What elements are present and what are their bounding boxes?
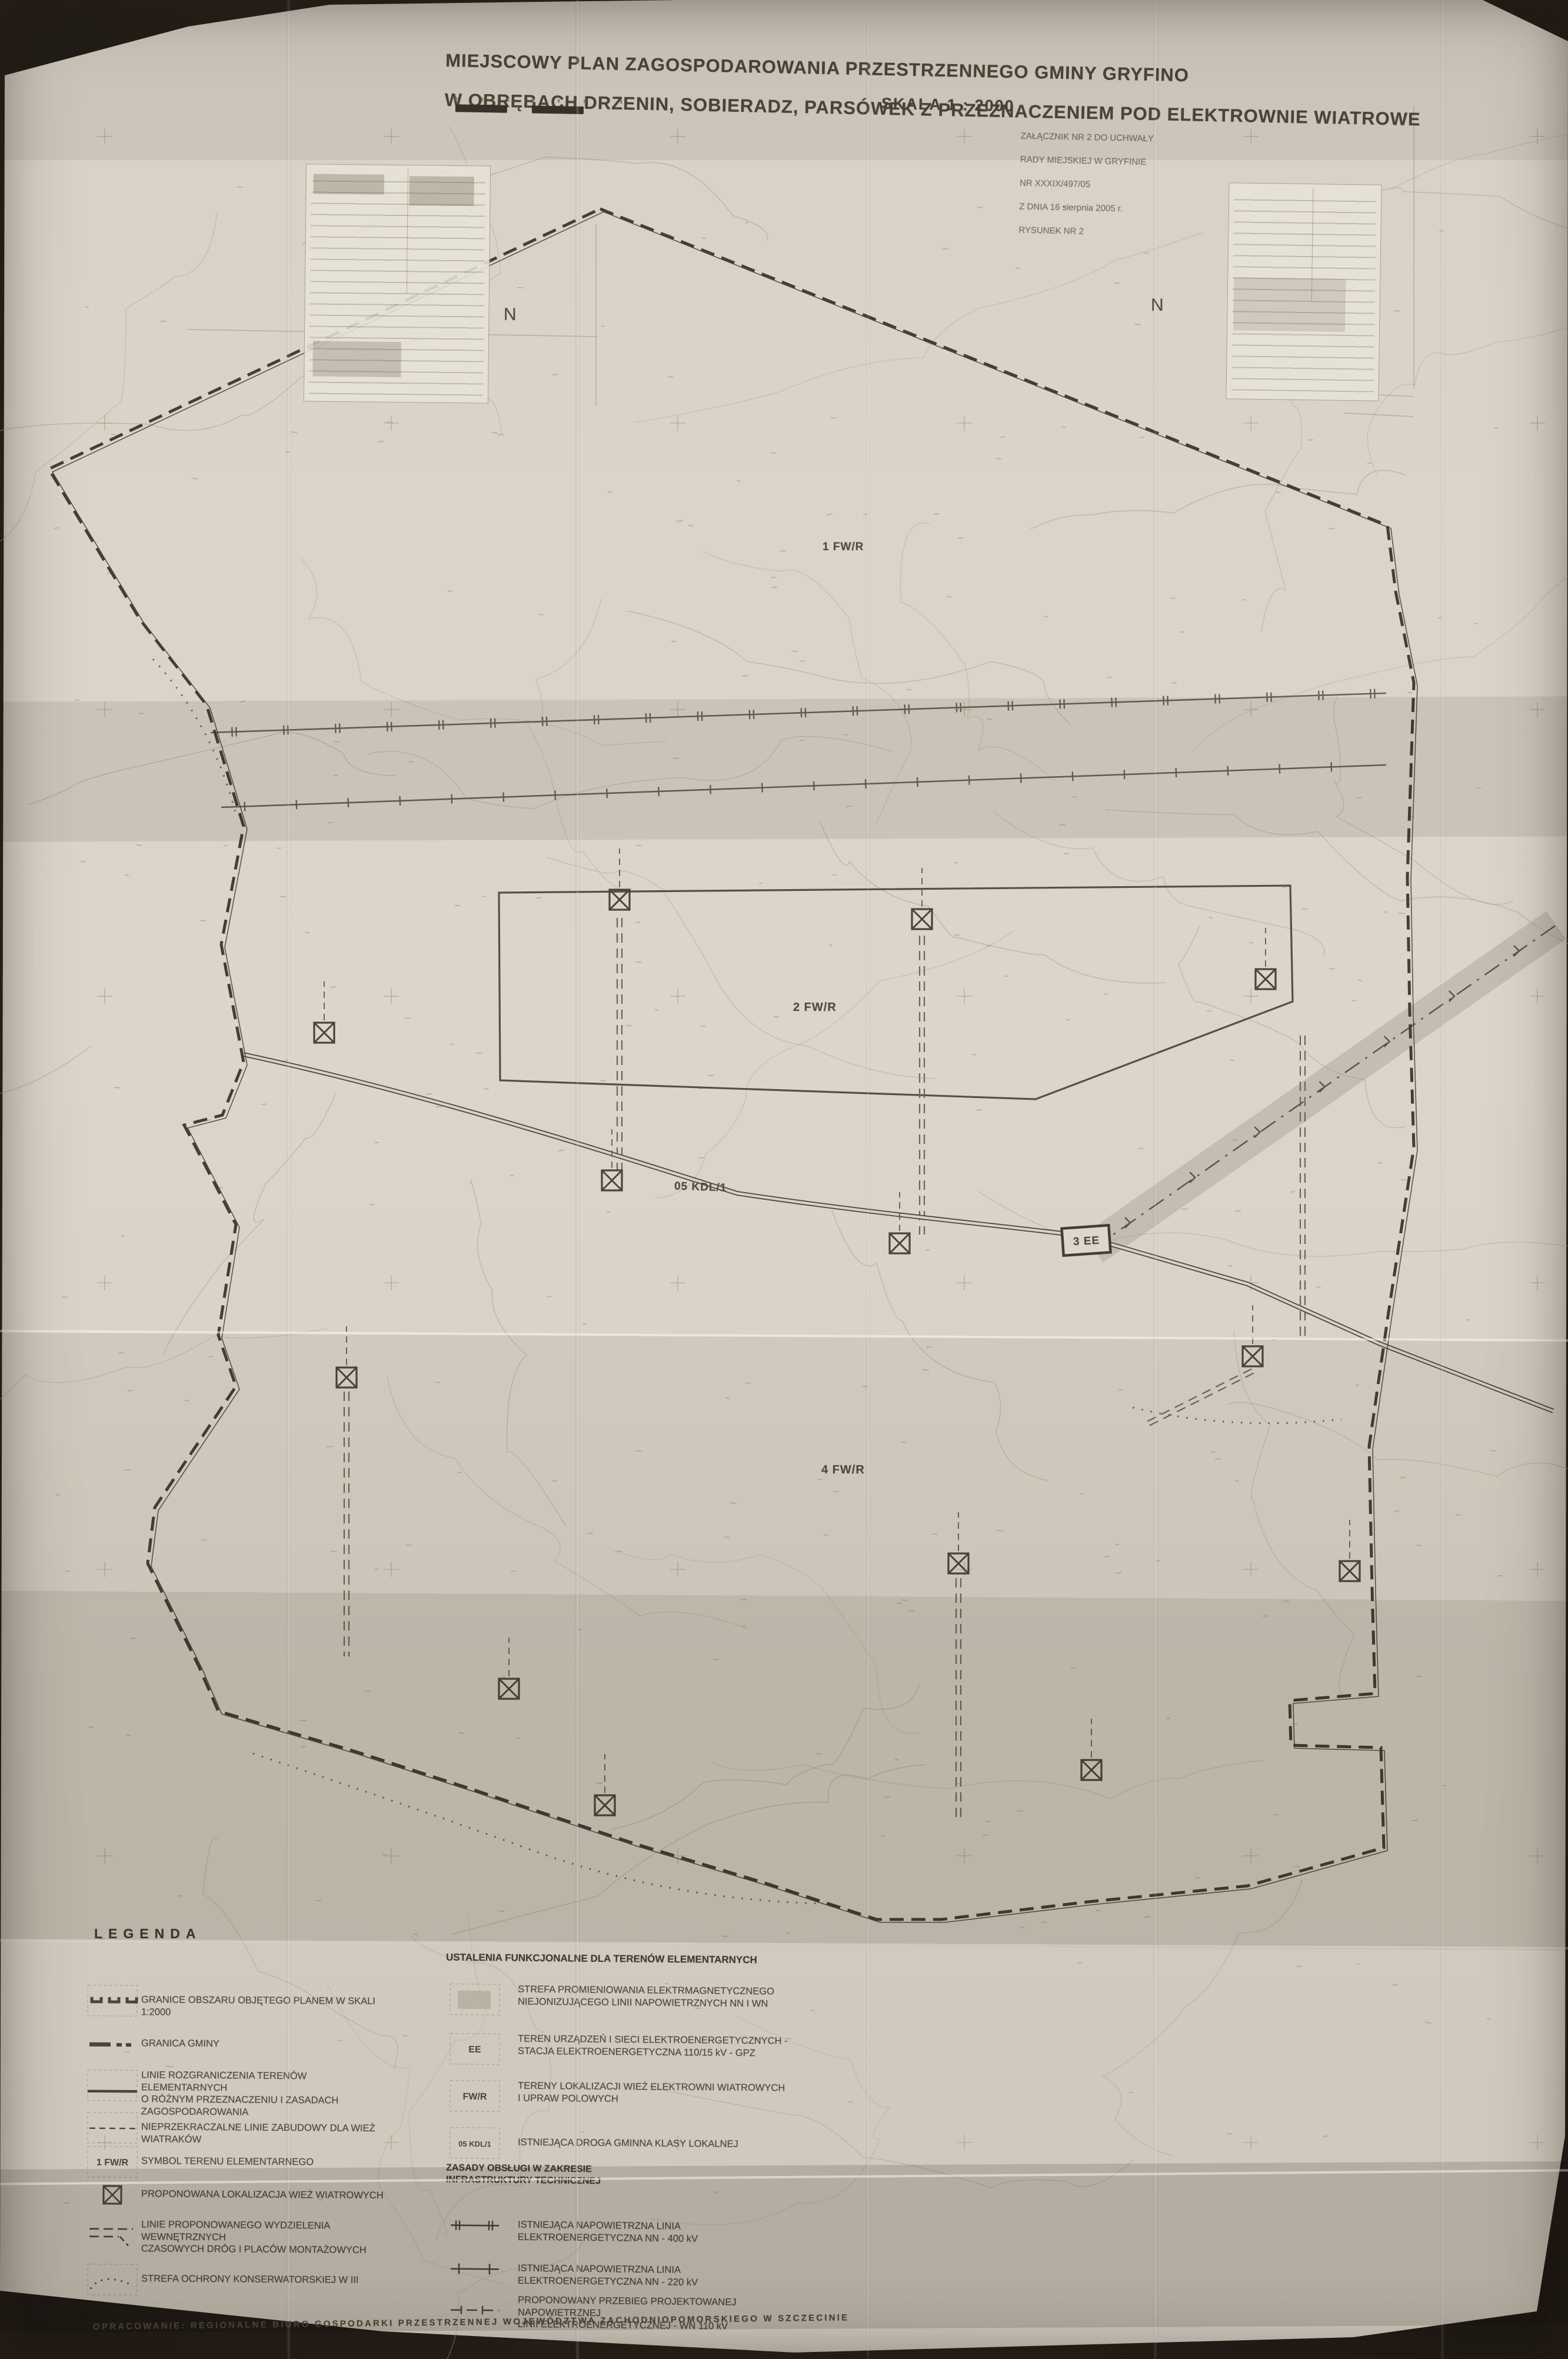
legend-item: LINIE ROZGRANICZENIA TERENÓW ELEMENTARNY… bbox=[86, 2068, 139, 2107]
legend-item: 05 KDL/1ISTNIEJĄCA DROGA GMINNA KLASY LO… bbox=[448, 2125, 502, 2164]
legend-item: PROPONOWANA LOKALIZACJA WIEŻ WIATROWYCH bbox=[86, 2177, 139, 2216]
scale-bar-segment bbox=[455, 104, 507, 113]
contour-line bbox=[1103, 1880, 1302, 2156]
grid-cross bbox=[1530, 2135, 1545, 2150]
contour-line bbox=[1031, 471, 1407, 529]
grid-cross bbox=[97, 1848, 112, 1864]
contour-line bbox=[471, 1181, 566, 1526]
area-label-1fwr: 1 FW/R bbox=[823, 540, 864, 554]
windmill-tower-symbol bbox=[610, 849, 630, 910]
legend-item-label: PROPONOWANA LOKALIZACJA WIEŻ WIATROWYCH bbox=[141, 2188, 394, 2202]
stamp-text-block bbox=[1233, 277, 1346, 332]
station-label-3ee: 3 EE bbox=[1073, 1234, 1100, 1249]
contour-line bbox=[654, 931, 1014, 1198]
grid-cross bbox=[1530, 702, 1545, 717]
grid-cross bbox=[670, 702, 685, 717]
svg-text:05 KDL/1: 05 KDL/1 bbox=[458, 2140, 491, 2148]
area-label-2fwr: 2 FW/R bbox=[793, 1000, 837, 1015]
legend-item-label: STREFA PROMIENIOWANIA ELEKTRMAGNETYCZNEG… bbox=[518, 1984, 794, 2010]
area-2fwr-boundary bbox=[499, 886, 1293, 1099]
zabudowy-symbol bbox=[86, 2110, 139, 2146]
contour-line bbox=[367, 737, 893, 808]
contour-line bbox=[1234, 1330, 1354, 1700]
plan-boundary-symbol bbox=[86, 1983, 139, 2019]
annotation-line: NR XXXIX/497/05 bbox=[1020, 178, 1153, 192]
grid-cross bbox=[384, 129, 399, 144]
grid-cross bbox=[957, 989, 972, 1004]
windmill-tower-symbol bbox=[314, 981, 334, 1043]
sheet-stamp-right bbox=[1226, 182, 1381, 401]
legend-item: STREFA PROMIENIOWANIA ELEKTRMAGNETYCZNEG… bbox=[448, 1982, 502, 2021]
temp-road-line bbox=[1146, 1369, 1251, 1422]
annotation-line: ZAŁĄCZNIK NR 2 DO UCHWAŁY bbox=[1020, 131, 1154, 145]
grid-cross bbox=[957, 415, 972, 431]
contour-line bbox=[1334, 696, 1513, 904]
grid-cross bbox=[957, 702, 972, 717]
contour-line bbox=[820, 821, 1167, 983]
grid-cross bbox=[384, 1562, 399, 1577]
resolution-annotation: ZAŁĄCZNIK NR 2 DO UCHWAŁY RADY MIEJSKIEJ… bbox=[1018, 119, 1154, 251]
scale-bar-segment bbox=[532, 106, 584, 115]
grid-cross bbox=[670, 989, 685, 1004]
legend-item: LINIE PROPONOWANEGO WYDZIELENIA WEWNĘTRZ… bbox=[86, 2217, 139, 2256]
grid-cross bbox=[97, 989, 112, 1004]
grid-cross bbox=[957, 1848, 972, 1864]
grid-cross bbox=[670, 415, 685, 431]
contour-line bbox=[410, 1917, 487, 2235]
drogi-symbol bbox=[86, 2217, 139, 2253]
contour-line bbox=[703, 551, 912, 823]
legend-item: STREFA OCHRONY KONSERWATORSKIEJ W III bbox=[86, 2262, 139, 2301]
graphic-scale-bar bbox=[448, 97, 648, 118]
conservation-zone-line bbox=[253, 1754, 824, 1904]
legend-item-label: SYMBOL TERENU ELEMENTARNEGO bbox=[141, 2155, 394, 2169]
gmina-boundary-symbol bbox=[86, 2027, 139, 2062]
grid-cross bbox=[97, 415, 112, 431]
contour-line bbox=[1193, 558, 1568, 751]
plan-boundary bbox=[49, 209, 1414, 1919]
em-strip-symbol bbox=[448, 1982, 502, 2018]
legend-item: EETEREN URZĄDZEŃ I SIECI ELEKTROENERGETY… bbox=[448, 2031, 502, 2070]
legend-item-label: TEREN URZĄDZEŃ I SIECI ELEKTROENERGETYCZ… bbox=[518, 2033, 794, 2059]
svg-text:FW/R: FW/R bbox=[462, 2092, 487, 2102]
contour-line bbox=[0, 1329, 327, 1489]
contour-line bbox=[203, 1838, 398, 2069]
grid-cross bbox=[670, 129, 685, 144]
stamp-text-block bbox=[409, 176, 474, 206]
legend-item-label: NIEPRZEKRACZALNE LINIE ZABUDOWY DLA WIEŻ… bbox=[141, 2121, 394, 2147]
annotation-line: RADY MIEJSKIEJ W GRYFINIE bbox=[1020, 154, 1154, 169]
grid-cross bbox=[1243, 1562, 1259, 1577]
grid-cross bbox=[384, 1275, 399, 1290]
windmill-tower-symbol bbox=[1243, 1305, 1263, 1366]
windmill-symbol bbox=[86, 2177, 139, 2213]
contour-line bbox=[452, 1765, 926, 1934]
grid-cross bbox=[1243, 1848, 1259, 1864]
contour-line bbox=[1226, 1402, 1568, 1476]
sheet-frame-line bbox=[1344, 413, 1413, 417]
annotation-line: RYSUNEK NR 2 bbox=[1018, 225, 1152, 239]
annotation-line: Z DNIA 16 sierpnia 2005 r. bbox=[1019, 201, 1153, 216]
legend-item-label: GRANICE OBSZARU OBJĘTEGO PLANEM W SKALI … bbox=[141, 1994, 394, 2019]
legend-item: FW/RTERENY LOKALIZACJI WIEŻ ELEKTROWNI W… bbox=[448, 2078, 502, 2117]
legend-item-label: ISTNIEJĄCA DROGA GMINNA KLASY LOKALNEJ bbox=[518, 2137, 794, 2151]
grid-cross bbox=[97, 1562, 112, 1577]
grid-cross bbox=[1530, 1562, 1545, 1577]
windmill-tower-symbol bbox=[890, 1192, 910, 1253]
contour-line bbox=[610, 1549, 919, 1734]
map-title-line1: MIEJSCOWY PLAN ZAGOSPODAROWANIA PRZESTRZ… bbox=[445, 49, 1434, 92]
grid-cross bbox=[384, 989, 399, 1004]
code-box-symbol: 05 KDL/1 bbox=[448, 2125, 502, 2161]
windmill-tower-symbol bbox=[499, 1638, 519, 1699]
legend-item: GRANICE OBSZARU OBJĘTEGO PLANEM W SKALI … bbox=[86, 1983, 139, 2022]
conservation-zone-line bbox=[153, 659, 235, 812]
contour-line bbox=[387, 1375, 747, 1629]
contour-line bbox=[1367, 321, 1568, 476]
rozgraniczenia-symbol bbox=[86, 2068, 139, 2104]
svg-text:1 FW/R: 1 FW/R bbox=[96, 2158, 129, 2168]
windmill-tower-symbol bbox=[337, 1326, 357, 1388]
code-box-symbol: FW/R bbox=[448, 2078, 502, 2114]
legend-heading: LEGENDA bbox=[94, 1925, 201, 1942]
legend-item-label: ISTNIEJĄCA NAPOWIETRZNA LINIA ELEKTROENE… bbox=[518, 2262, 800, 2290]
legend-item-label: LINIE PROPONOWANEGO WYDZIELENIA WEWNĘTRZ… bbox=[141, 2218, 394, 2257]
grid-cross bbox=[1243, 415, 1259, 431]
legend-item: GRANICA GMINY bbox=[86, 2027, 139, 2065]
contour-line bbox=[712, 1760, 1266, 1799]
grid-cross bbox=[1530, 1848, 1545, 1864]
grid-cross bbox=[1243, 702, 1259, 717]
north-label: N bbox=[1151, 294, 1164, 317]
legend-item-label: STREFA OCHRONY KONSERWATORSKIEJ W III bbox=[141, 2273, 394, 2287]
grid-cross bbox=[1243, 2135, 1259, 2150]
line-400-symbol bbox=[448, 2208, 502, 2244]
grid-cross bbox=[384, 415, 399, 431]
area-label-4fwr: 4 FW/R bbox=[821, 1463, 865, 1478]
grid-cross bbox=[1530, 989, 1545, 1004]
windmill-tower-symbol bbox=[912, 868, 932, 929]
grid-cross bbox=[384, 702, 399, 717]
contour-line bbox=[832, 1210, 1048, 1480]
windmill-tower-symbol bbox=[1081, 1719, 1101, 1780]
windmill-tower-symbol bbox=[595, 1754, 615, 1815]
legend-item: ISTNIEJĄCA NAPOWIETRZNA LINIA ELEKTROENE… bbox=[448, 2208, 502, 2247]
road-label-05kdl1: 05 KDL/1 bbox=[674, 1179, 727, 1195]
contour-line bbox=[301, 558, 667, 746]
windmill-tower-symbol bbox=[948, 1512, 968, 1573]
svg-text:EE: EE bbox=[468, 2045, 481, 2055]
grid-cross bbox=[670, 1562, 685, 1577]
legend-item-label: LINIE ROZGRANICZENIA TERENÓW ELEMENTARNY… bbox=[141, 2069, 395, 2120]
grid-cross bbox=[97, 1275, 112, 1290]
grid-cross bbox=[670, 1275, 685, 1290]
contour-line bbox=[0, 211, 217, 550]
windmill-tower-symbol bbox=[1256, 928, 1276, 989]
windmill-tower-symbol bbox=[1340, 1520, 1360, 1581]
windmill-tower-symbol bbox=[602, 1129, 622, 1190]
grid-cross bbox=[384, 1848, 399, 1864]
power-line-220kv bbox=[221, 765, 1386, 807]
grid-cross bbox=[1530, 1275, 1545, 1290]
legend-item-label: GRANICA GMINY bbox=[141, 2037, 394, 2051]
konserwatorska-symbol bbox=[86, 2262, 139, 2298]
contour-line bbox=[900, 523, 1054, 780]
grid-cross bbox=[957, 1275, 972, 1290]
contour-line bbox=[627, 611, 1070, 725]
line-220-symbol bbox=[448, 2251, 502, 2287]
stamp-text-block bbox=[312, 341, 401, 378]
grid-cross bbox=[957, 2135, 972, 2150]
grid-cross bbox=[97, 129, 112, 144]
legend-item: NIEPRZEKRACZALNE LINIE ZABUDOWY DLA WIEŻ… bbox=[86, 2110, 139, 2149]
legend-item-label: TERENY LOKALIZACJI WIEŻ ELEKTROWNI WIATR… bbox=[518, 2080, 794, 2107]
grid-cross bbox=[97, 702, 112, 717]
stamp-text-block bbox=[314, 174, 384, 195]
legend-item: ISTNIEJĄCA NAPOWIETRZNA LINIA ELEKTROENE… bbox=[448, 2251, 502, 2290]
legend-section-header: ZASADY OBSŁUGI W ZAKRESIE INFRASTRUKTURY… bbox=[446, 2162, 601, 2188]
north-label: N bbox=[504, 304, 517, 326]
contour-line bbox=[1106, 810, 1568, 954]
sheet-stamp-left bbox=[304, 164, 491, 403]
legend-item-label: ISTNIEJĄCA NAPOWIETRZNA LINIA ELEKTROENE… bbox=[518, 2219, 800, 2246]
scale-label: SKALA 1 : 2000 bbox=[881, 94, 1015, 117]
code-box-symbol: EE bbox=[448, 2031, 502, 2067]
teren-code-symbol: 1 FW/R bbox=[86, 2144, 139, 2180]
contour-line bbox=[0, 1046, 92, 1335]
grid-cross bbox=[1243, 989, 1259, 1004]
contour-line bbox=[634, 232, 1202, 422]
contour-line bbox=[28, 733, 395, 805]
grid-cross bbox=[1530, 415, 1545, 431]
